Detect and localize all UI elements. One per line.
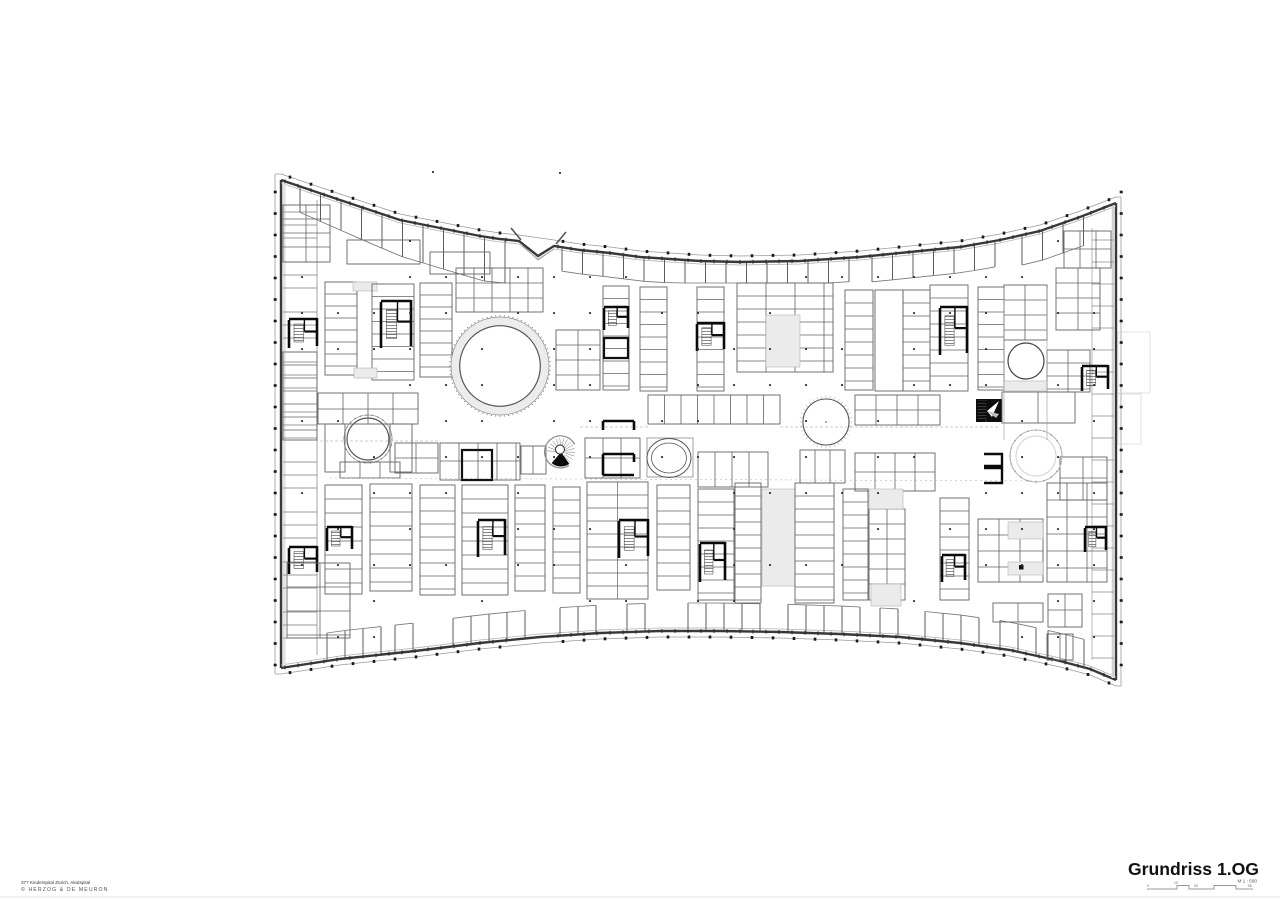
- svg-text:377 Kinderspital Zürich, Akuts: 377 Kinderspital Zürich, Akutspital: [21, 880, 90, 885]
- svg-text:Grundriss 1.OG: Grundriss 1.OG: [1128, 859, 1259, 879]
- svg-text:50: 50: [1248, 884, 1252, 888]
- svg-text:0: 0: [1147, 884, 1149, 888]
- svg-text:10: 10: [1174, 881, 1178, 885]
- svg-text:© HERZOG & DE MEURON: © HERZOG & DE MEURON: [21, 886, 109, 893]
- svg-text:25: 25: [1194, 884, 1198, 888]
- svg-text:M 1 : 500: M 1 : 500: [1237, 879, 1257, 884]
